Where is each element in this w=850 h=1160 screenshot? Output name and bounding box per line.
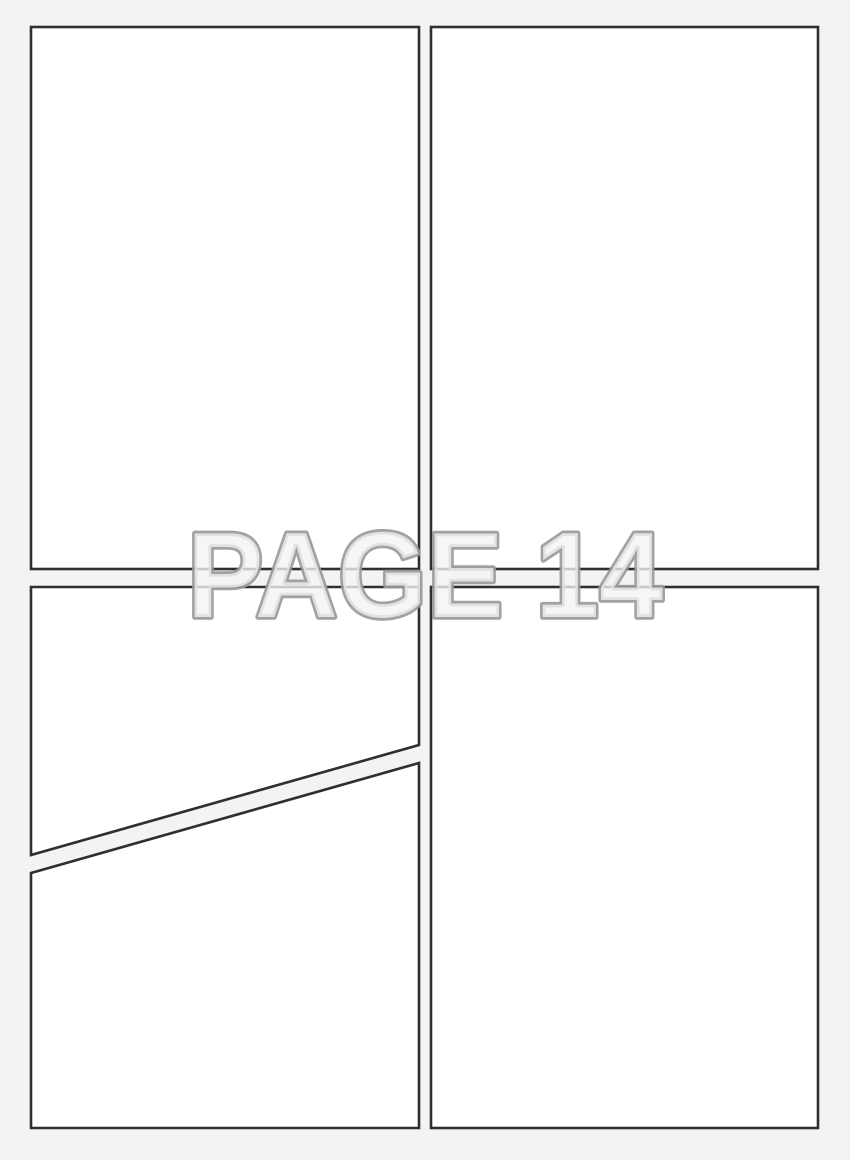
- panel-top-right: [431, 27, 818, 569]
- page-number-label: PAGE 14: [187, 507, 663, 643]
- panel-bottom-right: [431, 587, 818, 1128]
- panel-top-left: [31, 27, 419, 569]
- comic-page-template: PAGE 14: [0, 0, 850, 1160]
